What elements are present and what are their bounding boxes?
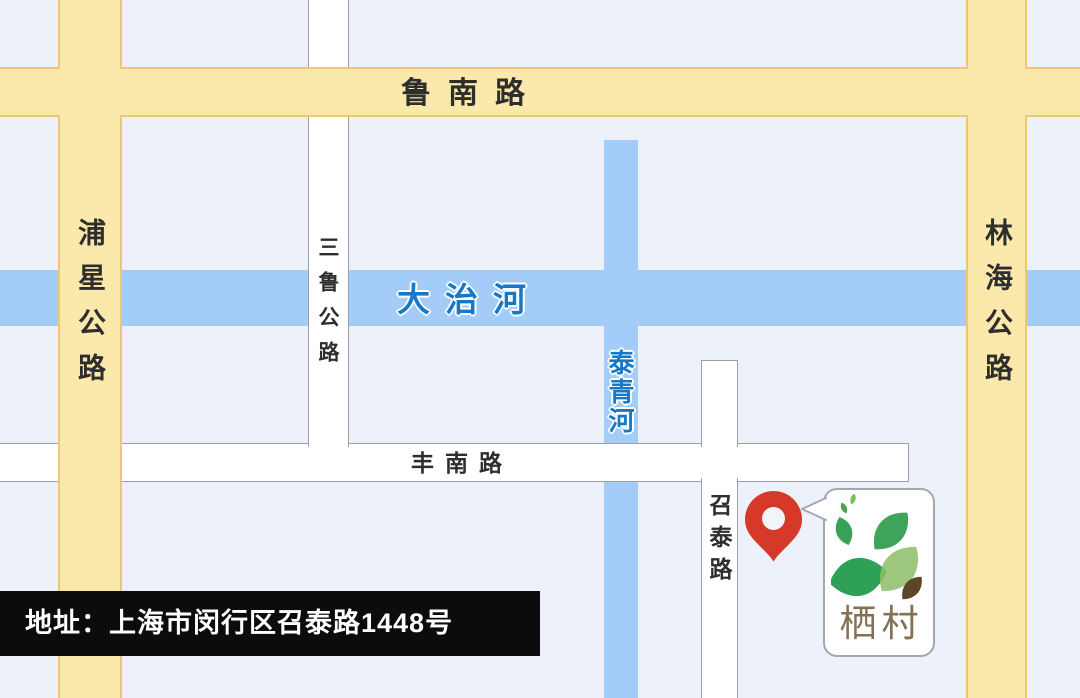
road-label-fengnan: 丰南路 <box>411 452 513 475</box>
road-label-puxing: 浦星公路 <box>76 218 104 398</box>
logo-card-name: 栖村 <box>825 593 933 647</box>
address-bar: 地址：上海市闵行区召泰路1448号 <box>0 591 540 656</box>
road-label-lunan: 鲁南路 <box>401 79 542 109</box>
location-pin-icon <box>745 491 802 562</box>
logo-card: 栖村 <box>823 488 935 657</box>
river-label-taiqing: 泰青河 <box>607 349 633 436</box>
road-zhaotai-upper <box>701 360 738 447</box>
river-label-dazhi: 大治河 <box>397 283 541 316</box>
bubble-tail <box>799 496 827 522</box>
road-linhai-lower <box>966 115 1027 698</box>
road-linhai-upper <box>966 0 1027 69</box>
road-label-sanlu: 三鲁公路 <box>317 236 338 376</box>
road-label-linhai: 林海公路 <box>983 218 1011 398</box>
logo-leaves-icon <box>831 494 929 606</box>
map-canvas: 鲁南路 丰南路 浦星公路 林海公路 三鲁公路 召泰路 大治河 泰青河 栖村 地址… <box>0 0 1080 698</box>
road-puxing-upper <box>58 0 122 69</box>
address-text: 地址：上海市闵行区召泰路1448号 <box>0 591 540 656</box>
road-label-zhaotai: 召泰路 <box>707 493 730 589</box>
